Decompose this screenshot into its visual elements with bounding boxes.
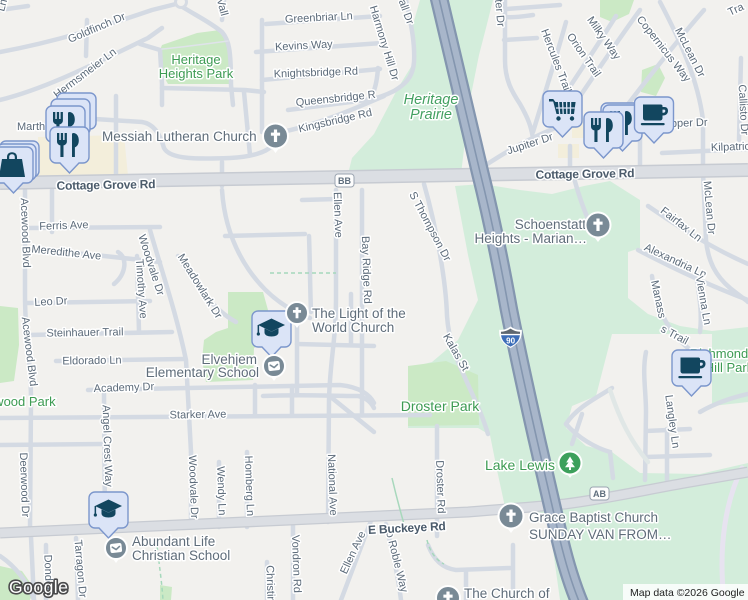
svg-text:Ferris Ave: Ferris Ave [39, 219, 89, 233]
svg-text:Heritage: Heritage [404, 92, 459, 108]
svg-text:Woodvale Dr: Woodvale Dr [186, 455, 200, 519]
svg-text:Heritage: Heritage [171, 52, 220, 67]
svg-text:National Ave: National Ave [325, 454, 339, 516]
svg-text:Droster Park: Droster Park [401, 398, 481, 414]
svg-text:World Church: World Church [312, 320, 394, 335]
svg-text:Wendy Ln: Wendy Ln [214, 466, 228, 516]
svg-text:Steinhauer Trail: Steinhauer Trail [46, 326, 123, 339]
svg-text:Leo Dr: Leo Dr [34, 295, 68, 309]
svg-text:SUNDAY VAN FROM…: SUNDAY VAN FROM… [529, 527, 672, 542]
svg-text:Homberg Ln: Homberg Ln [242, 455, 256, 516]
svg-text:The Church of: The Church of [464, 586, 550, 600]
svg-text:Academy Dr: Academy Dr [93, 381, 154, 395]
svg-text:Acewood Blvd: Acewood Blvd [18, 198, 32, 268]
svg-text:Map data ©2026 Google: Map data ©2026 Google [630, 587, 745, 599]
svg-text:Droster Rd: Droster Rd [433, 460, 447, 514]
svg-text:Heights - Marian…: Heights - Marian… [474, 231, 587, 246]
svg-text:Ellen Ave: Ellen Ave [331, 192, 345, 238]
svg-text:90: 90 [506, 337, 515, 346]
svg-text:Cottage Grove Rd: Cottage Grove Rd [535, 166, 634, 182]
svg-text:Prairie: Prairie [410, 107, 452, 123]
svg-text:Eldorado Ln: Eldorado Ln [62, 354, 122, 367]
svg-text:The Light of the: The Light of the [312, 306, 406, 321]
svg-text:Christian School: Christian School [132, 548, 230, 563]
svg-text:Messiah Lutheran Church: Messiah Lutheran Church [102, 129, 257, 144]
svg-text:Lake Lewis: Lake Lewis [485, 457, 555, 473]
svg-text:Starker Ave: Starker Ave [170, 409, 227, 422]
svg-text:Grace Baptist Church: Grace Baptist Church [529, 510, 658, 525]
svg-text:BB: BB [338, 176, 351, 186]
svg-text:Cottage Grove Rd: Cottage Grove Rd [56, 177, 155, 193]
svg-text:Google: Google [9, 577, 68, 597]
svg-text:Elementary School: Elementary School [146, 365, 259, 380]
svg-text:AB: AB [593, 489, 606, 499]
svg-text:Schoenstatt: Schoenstatt [515, 217, 587, 232]
svg-text:Christin: Christin [263, 565, 276, 600]
svg-text:Deerwood Dr: Deerwood Dr [17, 452, 31, 518]
svg-text:Heights Park: Heights Park [159, 66, 234, 81]
svg-text:Kilpatric: Kilpatric [711, 141, 748, 154]
svg-text:pper Dr: pper Dr [671, 117, 708, 130]
svg-text:Abundant Life: Abundant Life [132, 534, 215, 549]
svg-text:Bay Ridge Rd: Bay Ridge Rd [359, 236, 373, 304]
svg-text:Deerwood Park: Deerwood Park [0, 394, 56, 409]
svg-text:Vondron Rd: Vondron Rd [289, 535, 303, 593]
